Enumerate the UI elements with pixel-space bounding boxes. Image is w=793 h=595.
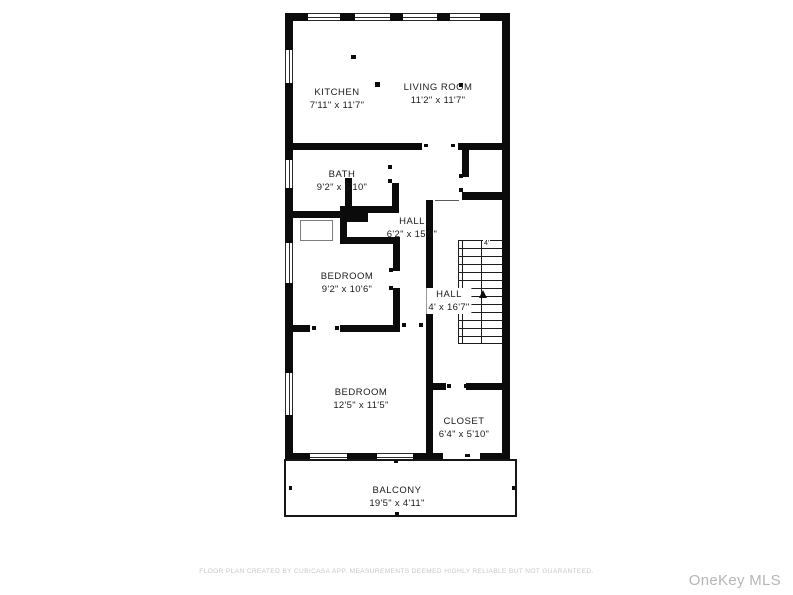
room-name: HALL xyxy=(428,289,469,300)
door-mark xyxy=(465,454,470,457)
room-label-bath: BATH 9'2" x 5'10" xyxy=(317,169,367,193)
interior-wall xyxy=(340,325,400,332)
door-mark xyxy=(389,268,393,272)
measure-mark xyxy=(395,512,399,515)
door-mark xyxy=(459,174,463,178)
room-dimensions: 11'2" x 11'7" xyxy=(404,95,473,106)
room-dimensions: 9'2" x 10'6" xyxy=(321,284,374,295)
stairs-direction-arrow xyxy=(479,290,487,298)
room-dimensions: 9'2" x 5'10" xyxy=(317,182,367,193)
interior-wall xyxy=(285,325,310,332)
room-label-hall-upper: HALL 6'2" x 15'9" xyxy=(387,216,437,240)
measure-mark xyxy=(289,486,292,490)
door-mark xyxy=(424,144,428,147)
door-mark xyxy=(459,188,463,192)
door-leaf xyxy=(300,220,333,241)
window xyxy=(403,13,437,21)
room-dimensions: 6'2" x 15'9" xyxy=(387,229,437,240)
room-name: CLOSET xyxy=(439,416,489,427)
room-label-bedroom-1: BEDROOM 9'2" x 10'6" xyxy=(321,271,374,295)
room-dimensions: 6'4" x 5'10" xyxy=(439,429,489,440)
room-label-living-room: LIVING ROOM 11'2" x 11'7" xyxy=(404,82,473,106)
door-mark xyxy=(335,326,339,330)
watermark: OneKey MLS xyxy=(689,572,781,589)
interior-wall xyxy=(285,143,510,150)
door-mark xyxy=(447,384,451,388)
door-mark xyxy=(451,144,455,147)
room-name: KITCHEN xyxy=(310,87,365,98)
room-name: HALL xyxy=(387,216,437,227)
room-label-balcony: BALCONY 19'5" x 4'11" xyxy=(369,485,424,509)
door-mark xyxy=(312,326,316,330)
interior-wall xyxy=(462,192,510,200)
measure-mark xyxy=(375,82,380,87)
room-label-hall-stairs: HALL 4' x 16'7" xyxy=(426,288,471,314)
window xyxy=(450,13,480,21)
measure-mark xyxy=(351,55,356,59)
room-name: BEDROOM xyxy=(333,387,388,398)
interior-wall xyxy=(285,211,343,218)
exterior-wall-right xyxy=(502,13,510,461)
floor-plan-image: 4' KITCHEN 7'11" x 11'7" LIVING ROOM 11'… xyxy=(0,0,793,595)
measure-mark xyxy=(394,460,398,463)
door-mark xyxy=(389,286,393,290)
door-mark xyxy=(419,323,423,327)
disclaimer-text: FLOOR PLAN CREATED BY CUBICASA APP. MEAS… xyxy=(0,568,793,575)
interior-wall xyxy=(462,150,469,177)
stairs-width-label: 4' xyxy=(483,240,490,247)
interior-wall xyxy=(352,206,399,213)
room-dimensions: 7'11" x 11'7" xyxy=(310,100,365,111)
window xyxy=(308,13,340,21)
door-mark xyxy=(464,384,468,388)
interior-wall xyxy=(426,383,510,390)
room-name: BEDROOM xyxy=(321,271,374,282)
room-label-kitchen: KITCHEN 7'11" x 11'7" xyxy=(310,87,365,111)
room-name: LIVING ROOM xyxy=(404,82,473,93)
door-mark xyxy=(388,179,392,183)
window xyxy=(355,13,390,21)
room-name: BALCONY xyxy=(369,485,424,496)
measure-mark xyxy=(512,486,515,490)
window xyxy=(285,373,293,415)
room-dimensions: 19'5" x 4'11" xyxy=(369,498,424,509)
room-dimensions: 12'5" x 11'5" xyxy=(333,400,388,411)
door-mark xyxy=(388,165,392,169)
room-dimensions: 4' x 16'7" xyxy=(428,302,469,313)
window xyxy=(285,50,293,83)
window xyxy=(285,160,293,188)
window xyxy=(285,243,293,283)
door-opening xyxy=(393,271,400,288)
room-label-bedroom-2: BEDROOM 12'5" x 11'5" xyxy=(333,387,388,411)
door-mark xyxy=(402,323,406,327)
room-label-closet: CLOSET 6'4" x 5'10" xyxy=(439,416,489,440)
room-name: BATH xyxy=(317,169,367,180)
hall-boundary-line xyxy=(435,200,459,201)
